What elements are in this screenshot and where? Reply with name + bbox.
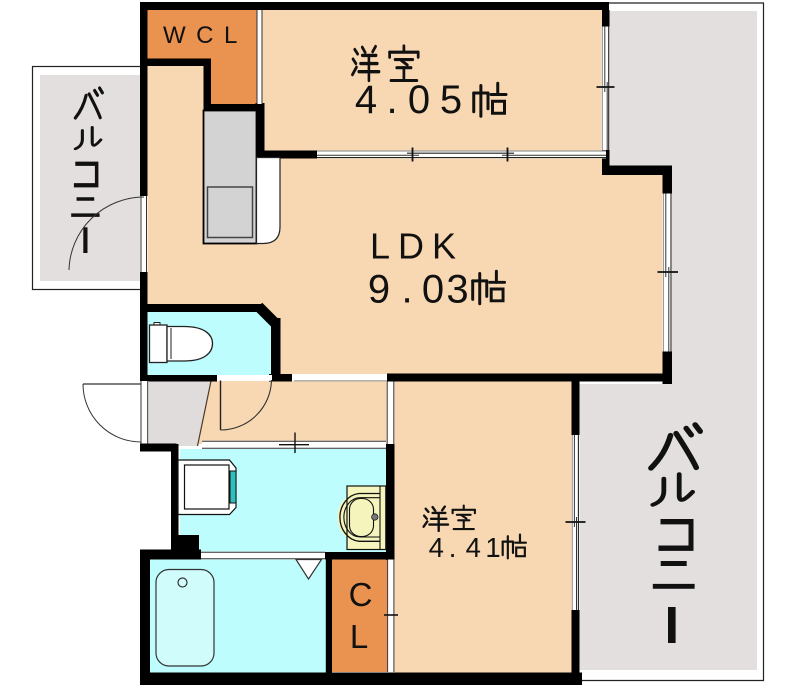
svg-text:.: . bbox=[401, 268, 412, 312]
svg-text:5: 5 bbox=[440, 78, 462, 122]
svg-text:4: 4 bbox=[355, 78, 377, 122]
svg-text:0: 0 bbox=[408, 78, 430, 122]
svg-text:4: 4 bbox=[466, 532, 481, 563]
svg-text:WCL: WCL bbox=[163, 22, 248, 49]
svg-text:4: 4 bbox=[429, 532, 444, 563]
svg-text:9: 9 bbox=[368, 268, 390, 312]
svg-text:L: L bbox=[350, 618, 368, 655]
svg-text:.: . bbox=[386, 78, 397, 122]
svg-text:LDK: LDK bbox=[370, 226, 464, 267]
svg-text:.: . bbox=[449, 532, 457, 563]
svg-text:C: C bbox=[349, 576, 373, 613]
svg-text:0: 0 bbox=[422, 268, 444, 312]
svg-text:3: 3 bbox=[446, 268, 468, 312]
svg-text:1: 1 bbox=[485, 532, 500, 563]
